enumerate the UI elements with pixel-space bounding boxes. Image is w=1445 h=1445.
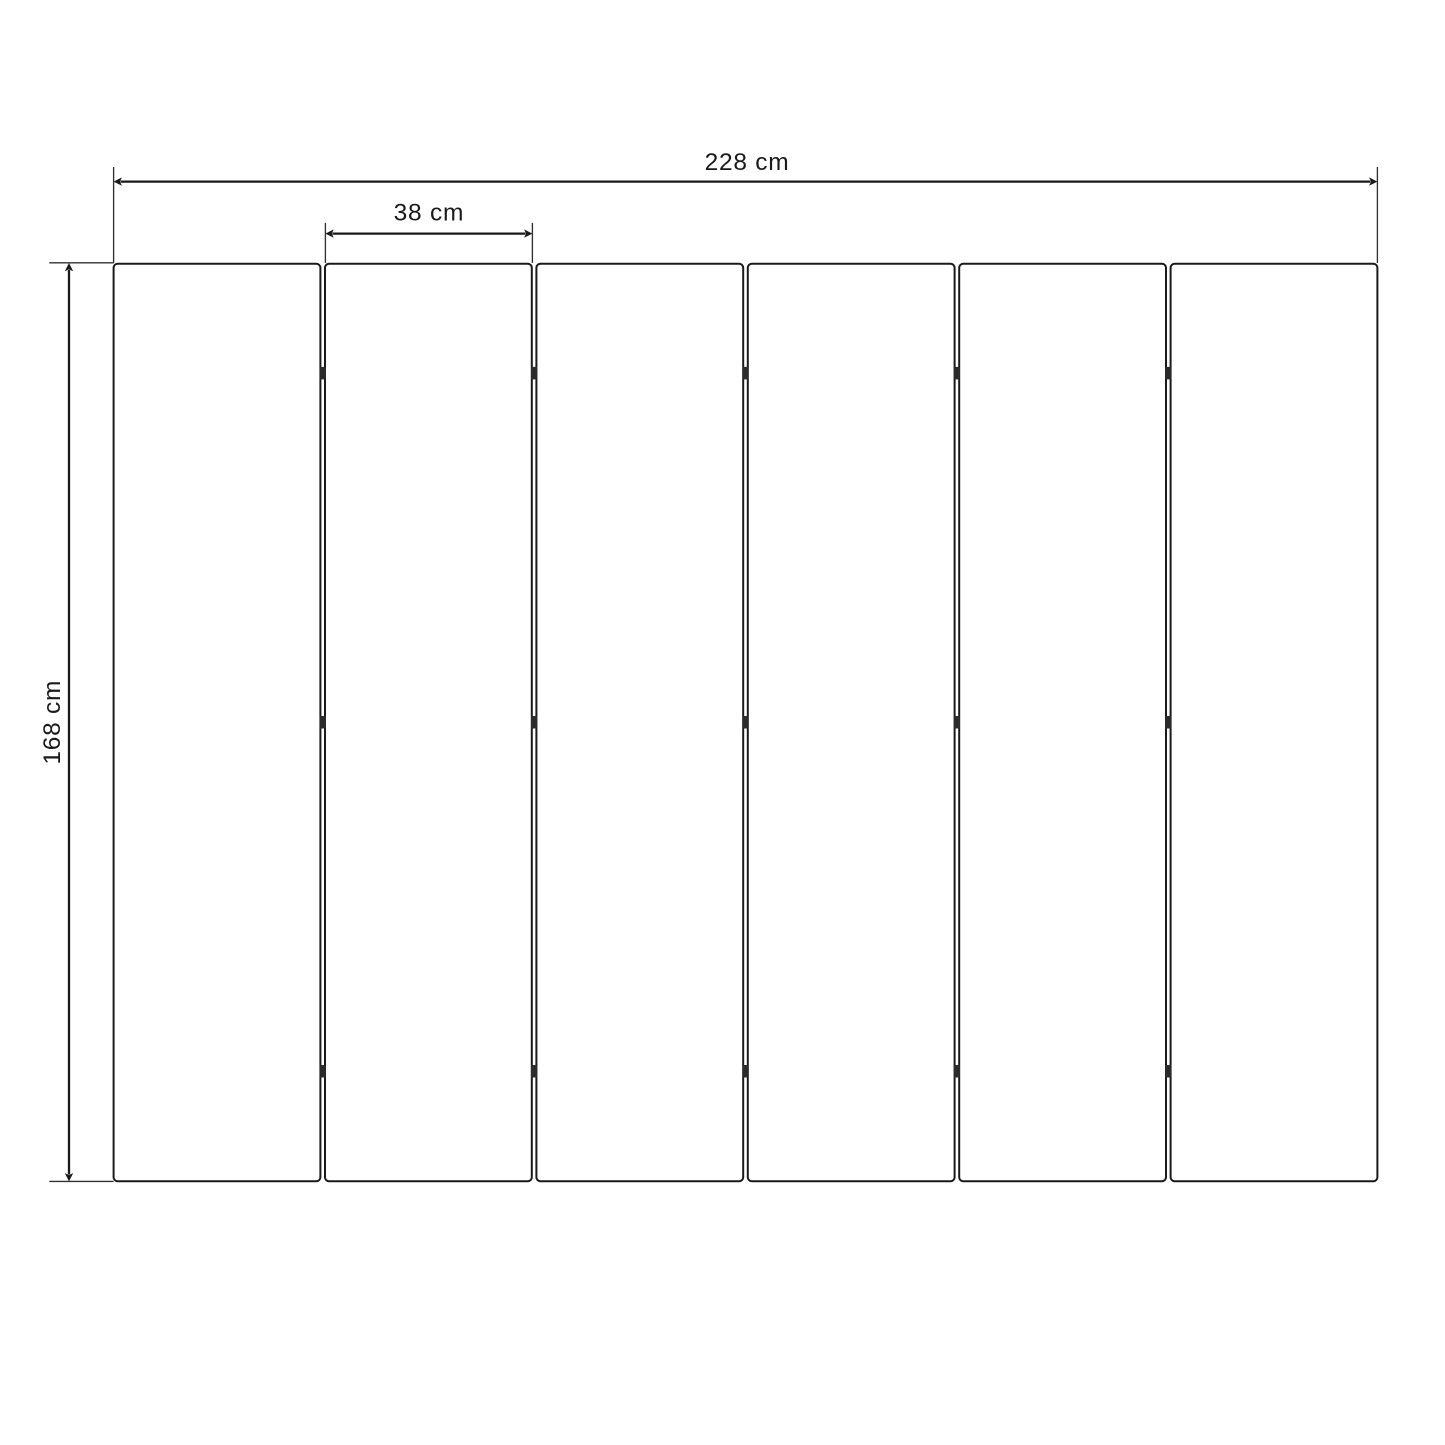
svg-text:38 cm: 38 cm (394, 199, 464, 226)
svg-text:228 cm: 228 cm (705, 149, 790, 176)
svg-text:168 cm: 168 cm (39, 680, 66, 765)
